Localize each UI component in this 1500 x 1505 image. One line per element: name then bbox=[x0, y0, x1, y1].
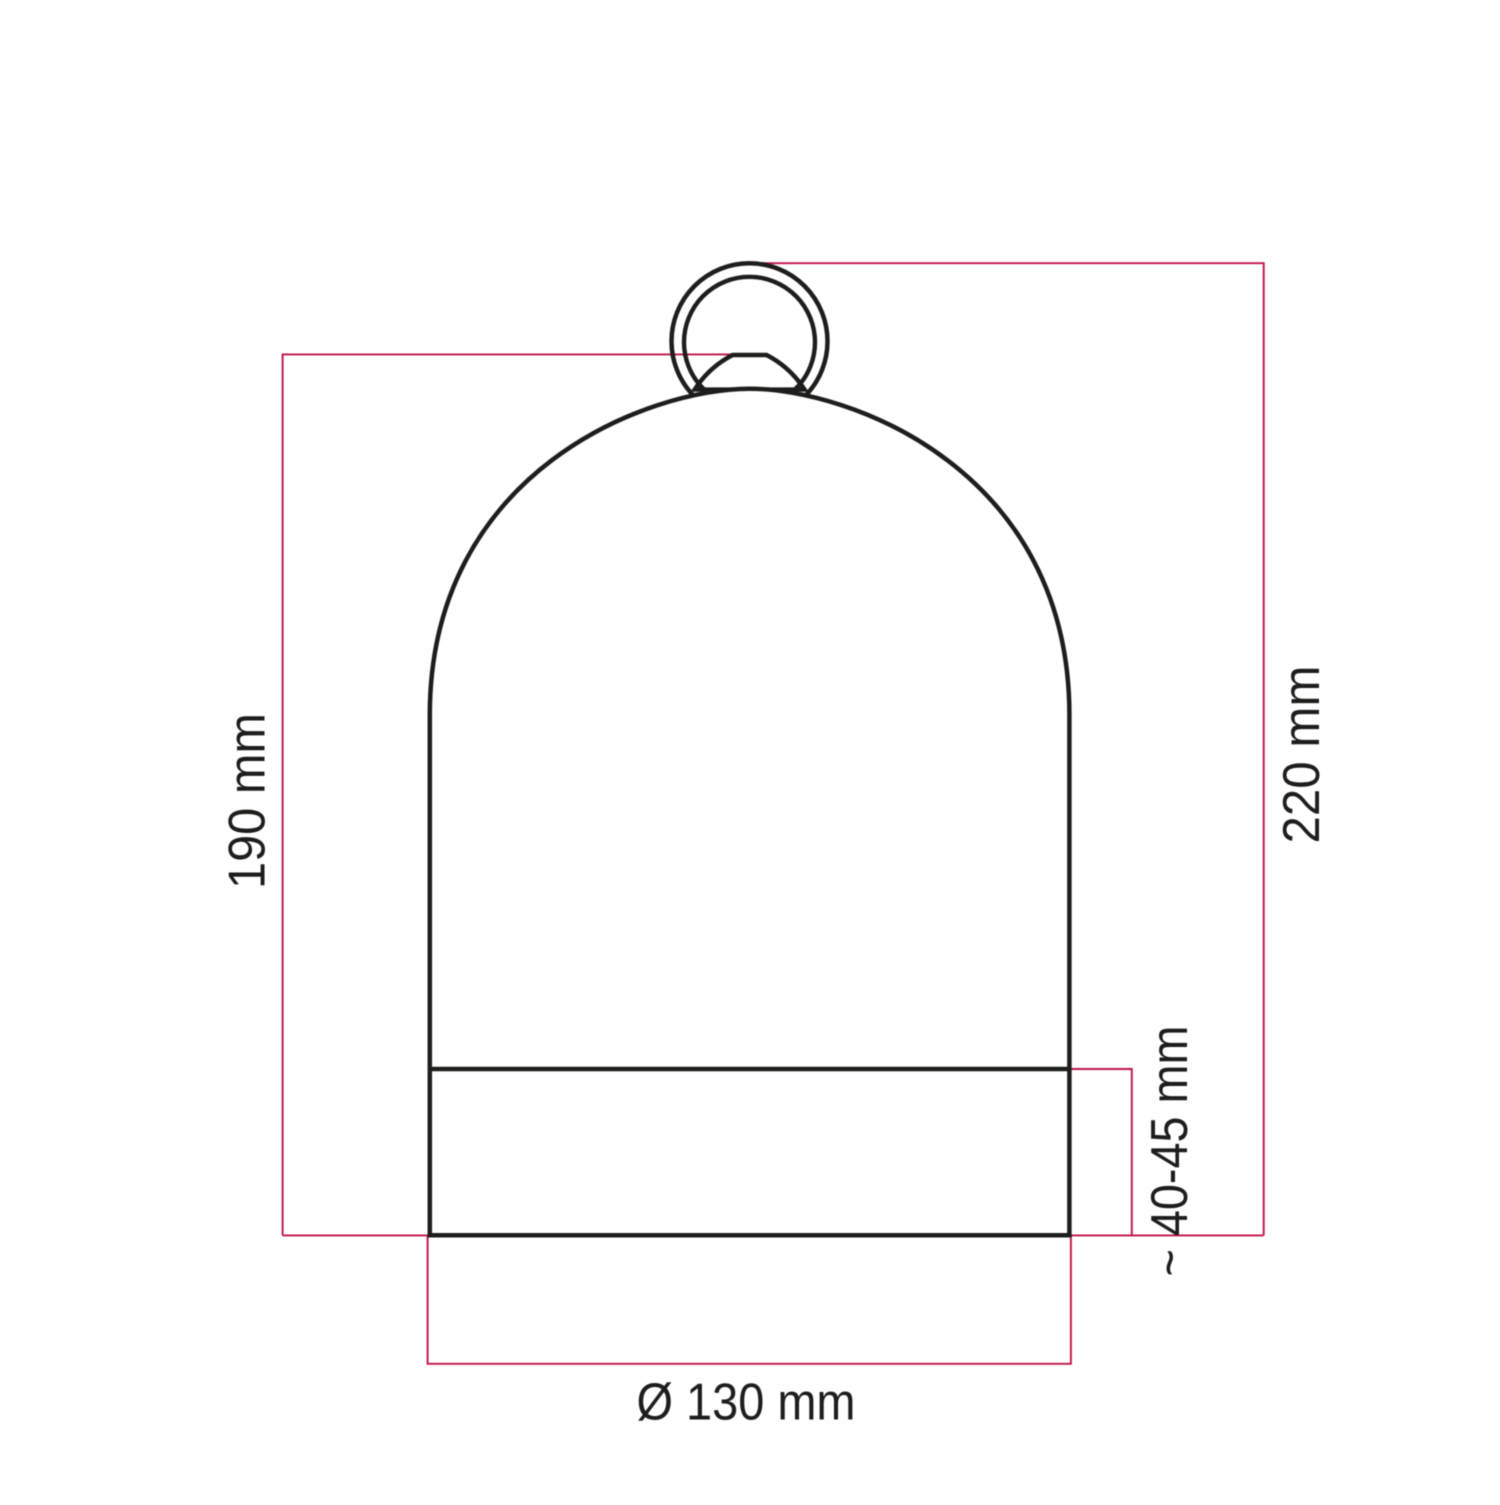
svg-text:~ 40-45 mm: ~ 40-45 mm bbox=[1141, 1026, 1199, 1277]
svg-text:190 mm: 190 mm bbox=[219, 713, 277, 889]
svg-text:220 mm: 220 mm bbox=[1273, 666, 1331, 844]
svg-text:Ø 130 mm: Ø 130 mm bbox=[637, 1374, 856, 1432]
